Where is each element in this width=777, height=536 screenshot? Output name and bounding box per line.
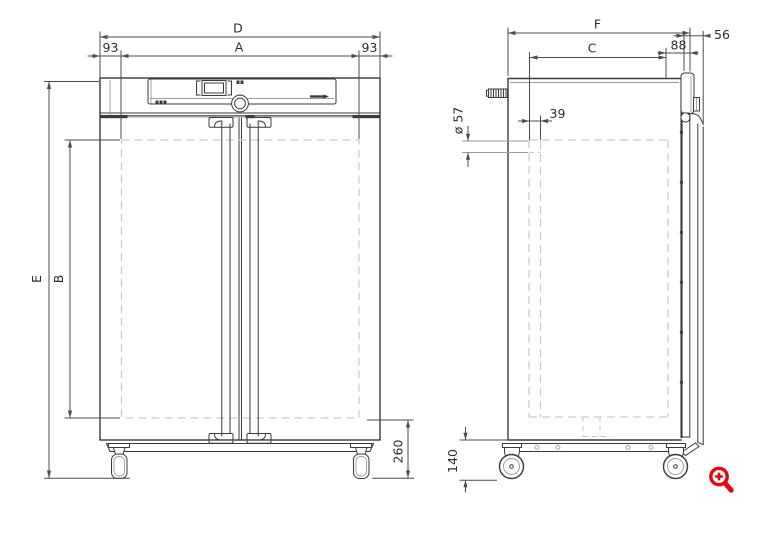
control-knob[interactable]	[232, 95, 249, 112]
front-cabinet-outline	[100, 78, 380, 440]
interior-outline-front	[122, 140, 360, 418]
dim-overall-height-E: E	[29, 82, 130, 479]
dim-caster-height-140: 140	[445, 427, 507, 493]
side-interior-dashed	[529, 140, 668, 437]
hinge-pivot	[681, 113, 690, 122]
front-caster-left	[109, 444, 130, 479]
dim-label-E: E	[29, 275, 44, 283]
brand-arrow-icon	[310, 94, 329, 98]
logo-dots	[237, 81, 244, 85]
side-caster-right	[664, 443, 700, 479]
display-panel	[197, 81, 232, 96]
dim-label-A: A	[235, 40, 244, 55]
dim-port-offset-39: 39	[518, 106, 565, 140]
dim-inner-depth-C: C	[530, 41, 667, 141]
door-handle-right[interactable]	[247, 118, 271, 444]
dim-base-height-260: 260	[367, 420, 414, 478]
dim-label-93-right: 93	[362, 40, 378, 55]
front-base	[107, 444, 374, 479]
zoom-icon[interactable]	[711, 468, 731, 490]
hinge-strip-right	[353, 115, 381, 118]
door-handle-side[interactable]	[694, 98, 700, 112]
dim-label-39: 39	[550, 106, 566, 121]
rear-port	[487, 89, 508, 98]
dim-inner-width-A-and-offsets: 93 A 93	[88, 40, 393, 140]
dim-label-F: F	[594, 17, 601, 32]
dim-label-93-left: 93	[103, 40, 119, 55]
panel-buttons[interactable]	[156, 101, 167, 105]
dim-inner-height-B: B	[51, 140, 120, 418]
front-view: D 93 A 93 E B	[29, 21, 414, 479]
hinge-strip-left	[100, 115, 128, 118]
dimension-drawing-page: D 93 A 93 E B	[0, 0, 777, 536]
control-panel	[148, 79, 336, 112]
dim-label-140: 140	[445, 449, 460, 473]
side-body-outline	[508, 79, 683, 441]
side-caster-left	[500, 444, 524, 479]
dim-label-diameter-57: ø 57	[451, 107, 466, 135]
front-doors[interactable]	[100, 115, 380, 443]
side-door-edge	[681, 73, 703, 445]
dim-label-88: 88	[671, 38, 687, 53]
front-caster-right	[351, 444, 372, 479]
door-handle-left[interactable]	[209, 118, 233, 444]
dim-label-D: D	[233, 21, 243, 36]
dim-overall-depth-F: F	[508, 17, 690, 77]
side-view: F 56 88 C 39	[445, 17, 730, 493]
dim-port-diameter-57: ø 57	[451, 107, 529, 167]
dim-label-260: 260	[391, 440, 406, 464]
technical-drawing: D 93 A 93 E B	[0, 0, 777, 536]
side-base	[500, 443, 700, 479]
dim-label-56: 56	[714, 27, 730, 42]
dim-label-C: C	[588, 41, 597, 56]
dim-label-B: B	[51, 275, 66, 284]
